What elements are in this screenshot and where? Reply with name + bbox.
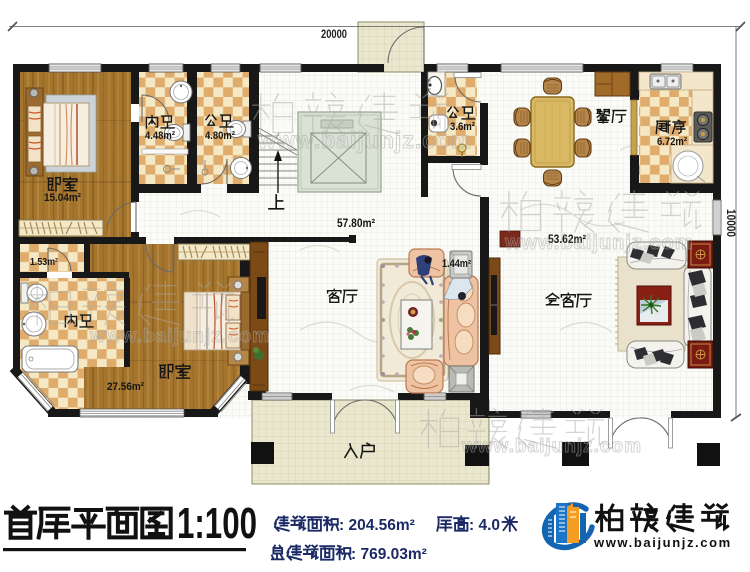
svg-text:57.80m²: 57.80m² [337,216,375,230]
svg-text:: 769.03m²: : 769.03m² [351,546,427,563]
svg-text:www.baijunjz.com: www.baijunjz.com [461,436,642,457]
svg-text:10000: 10000 [724,209,736,237]
svg-text:www.baijunjz.com: www.baijunjz.com [89,326,270,347]
svg-text:20000: 20000 [321,29,347,41]
svg-text:4.80m²: 4.80m² [205,130,235,142]
svg-text:: 4.0: : 4.0 [469,517,500,534]
svg-text:www.baijunjz.com: www.baijunjz.com [504,232,694,254]
svg-text:www.baijunjz.com: www.baijunjz.com [593,535,732,550]
svg-text:1:100: 1:100 [177,499,257,548]
svg-text:1.44m²: 1.44m² [442,258,471,270]
svg-text:1.53m²: 1.53m² [30,257,58,268]
svg-text:4.48m²: 4.48m² [145,130,175,142]
svg-text:6.72m²: 6.72m² [657,136,687,148]
svg-text:www.baijunjz.com: www.baijunjz.com [257,127,473,153]
svg-text:: 204.56m²: : 204.56m² [339,517,415,534]
svg-text:15.04m²: 15.04m² [44,192,81,204]
svg-text:27.56m²: 27.56m² [107,381,144,393]
